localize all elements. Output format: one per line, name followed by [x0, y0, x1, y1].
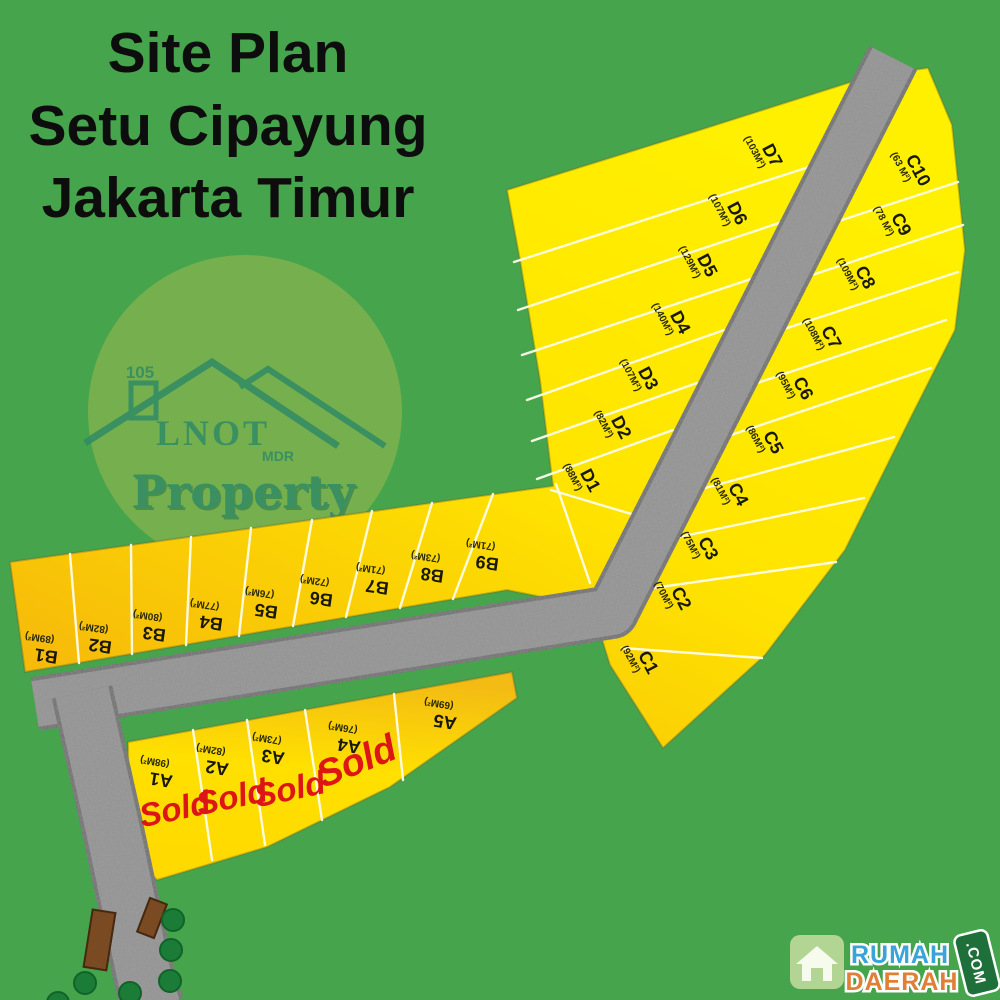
- svg-text:A5: A5: [432, 710, 458, 733]
- site-plan-map: 105 LNOT MDR Property Property: [0, 0, 1000, 1000]
- boundary-dot: [159, 970, 181, 992]
- svg-text:B7: B7: [364, 575, 390, 598]
- logo-number: 105: [126, 363, 154, 382]
- svg-text:B2: B2: [87, 634, 113, 657]
- boundary-dot: [119, 982, 141, 1000]
- boundary-dot: [162, 909, 184, 931]
- site-plan-image: 105 LNOT MDR Property Property: [0, 0, 1000, 1000]
- watermark-top: RUMAH: [851, 941, 949, 969]
- svg-text:A3: A3: [260, 745, 286, 768]
- title-line-3: Jakarta Timur: [42, 166, 415, 230]
- svg-text:A1: A1: [148, 768, 174, 791]
- svg-text:B9: B9: [474, 551, 500, 574]
- boundary-dot: [74, 972, 96, 994]
- watermark-bottom: DAERAH: [846, 968, 959, 996]
- svg-text:B1: B1: [33, 644, 59, 667]
- svg-text:B4: B4: [198, 611, 224, 634]
- logo-word: Property: [131, 465, 355, 519]
- logo-name: LNOT: [156, 413, 270, 453]
- house-door-icon: [811, 968, 823, 981]
- logo-sub: MDR: [262, 448, 294, 464]
- svg-text:B5: B5: [253, 599, 279, 622]
- svg-text:B8: B8: [419, 563, 445, 586]
- boundary-dot: [160, 939, 182, 961]
- svg-text:A2: A2: [204, 756, 230, 779]
- svg-text:B6: B6: [308, 587, 334, 610]
- title-line-1: Site Plan: [108, 21, 349, 85]
- title-line-2: Setu Cipayung: [28, 94, 427, 158]
- svg-text:B3: B3: [141, 622, 167, 645]
